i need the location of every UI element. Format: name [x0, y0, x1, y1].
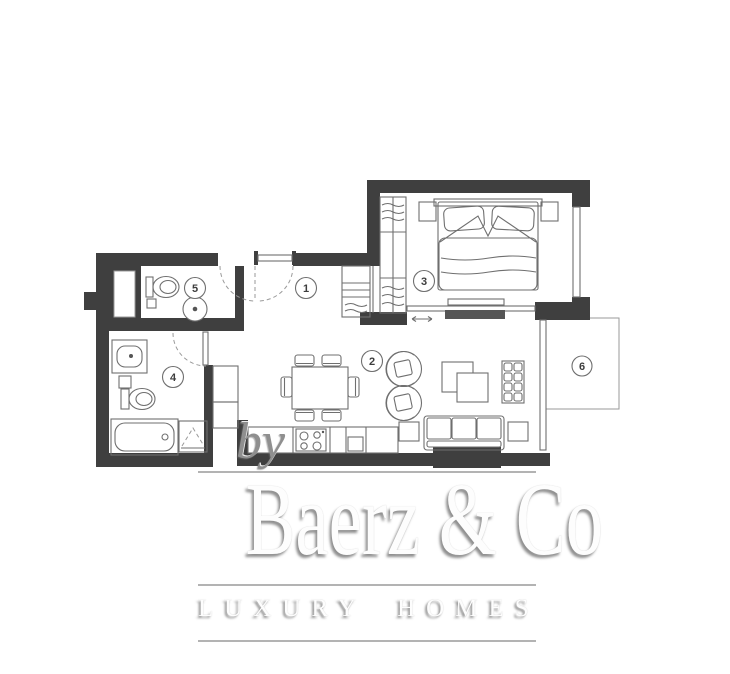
bed — [434, 199, 542, 290]
side-table — [399, 422, 419, 441]
watermark-tagline: LUXURY HOMES — [198, 595, 537, 623]
floor-plan-page: 1 2 3 4 5 6 by Baerz & Co LUXURY HOMES — [0, 0, 730, 674]
washing-machine — [179, 421, 207, 452]
toilet — [121, 389, 155, 410]
dining-chairs — [281, 355, 359, 421]
bedroom-window — [573, 207, 580, 297]
hallway-wardrobe — [342, 266, 373, 317]
armchair — [386, 386, 422, 421]
shaft — [114, 271, 135, 317]
svg-text:1: 1 — [303, 283, 309, 295]
fridge-cabinet — [213, 366, 238, 428]
entrance-door — [254, 251, 296, 301]
shelf-unit — [502, 361, 524, 403]
dining-table — [292, 367, 348, 409]
balcony-glass-door — [540, 320, 546, 450]
nightstand-right — [541, 202, 558, 221]
watermark-brand: Baerz & Co — [245, 466, 489, 576]
room-label-balcony: 6 — [572, 356, 592, 376]
svg-text:5: 5 — [192, 283, 198, 295]
svg-text:2: 2 — [369, 356, 375, 368]
bathroom-vanity-sink — [112, 340, 147, 373]
bathroom-door — [173, 332, 208, 366]
room-label-wc: 5 — [185, 278, 206, 299]
bathtub — [111, 419, 178, 455]
room-label-bedroom: 3 — [414, 271, 435, 292]
bedroom-wardrobe — [380, 197, 406, 313]
side-table — [508, 422, 528, 441]
room-label-hallway: 1 — [296, 278, 317, 299]
armchair — [386, 351, 421, 386]
coffee-tables — [442, 362, 488, 402]
room-label-bathroom: 4 — [163, 367, 184, 388]
svg-text:3: 3 — [421, 276, 427, 288]
watermark-rule-middle — [198, 584, 536, 586]
watermark-rule-bottom — [198, 640, 536, 642]
svg-text:4: 4 — [170, 372, 177, 384]
sofa — [424, 416, 504, 450]
svg-text:6: 6 — [579, 361, 585, 373]
stove — [296, 429, 326, 451]
room-label-living-room: 2 — [362, 351, 383, 372]
wc-toilet — [146, 277, 179, 309]
bathroom-bin — [119, 376, 131, 388]
